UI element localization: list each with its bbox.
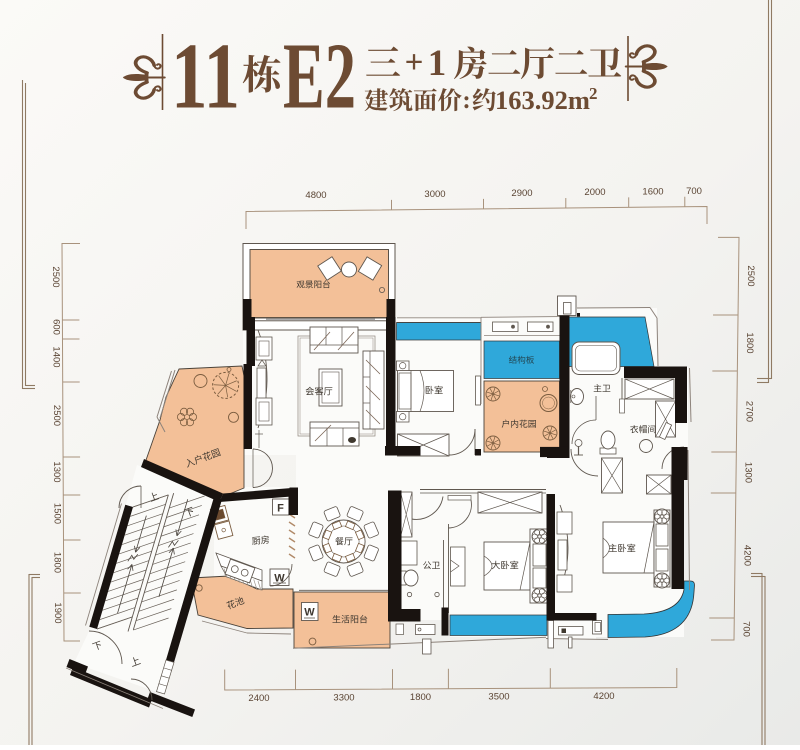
svg-text:+: + [405,45,424,81]
svg-text:2: 2 [589,84,598,103]
svg-text:E2: E2 [283,25,356,129]
svg-text:1800: 1800 [744,332,755,353]
svg-text:1: 1 [428,43,447,84]
svg-text:W: W [304,607,315,619]
svg-text:1800: 1800 [52,552,63,573]
svg-text:11: 11 [171,25,240,129]
svg-text:2500: 2500 [745,265,756,286]
svg-text:2400: 2400 [248,693,269,704]
svg-text:1400: 1400 [51,346,62,367]
svg-text:600: 600 [50,319,61,335]
svg-text:2500: 2500 [50,266,61,287]
svg-text:1600: 1600 [642,187,663,198]
svg-text:2700: 2700 [743,401,754,422]
svg-text:1300: 1300 [743,462,754,483]
svg-text:4200: 4200 [742,545,753,566]
svg-text:1800: 1800 [410,692,431,703]
svg-text:F: F [277,503,284,515]
svg-text:4200: 4200 [593,691,614,702]
svg-text:2900: 2900 [511,188,532,199]
svg-text:2000: 2000 [584,187,605,198]
svg-text:2500: 2500 [51,405,62,426]
svg-text:700: 700 [686,186,702,197]
svg-text:1300: 1300 [51,461,62,482]
svg-text:700: 700 [741,621,752,637]
svg-text:163.92m: 163.92m [495,85,590,115]
svg-text:1500: 1500 [51,503,62,524]
svg-text::: : [462,87,470,114]
svg-text:3300: 3300 [333,692,354,703]
svg-text:4800: 4800 [305,190,326,201]
svg-text:1900: 1900 [52,602,63,623]
svg-text:3000: 3000 [424,189,445,200]
svg-text:3500: 3500 [488,691,509,702]
